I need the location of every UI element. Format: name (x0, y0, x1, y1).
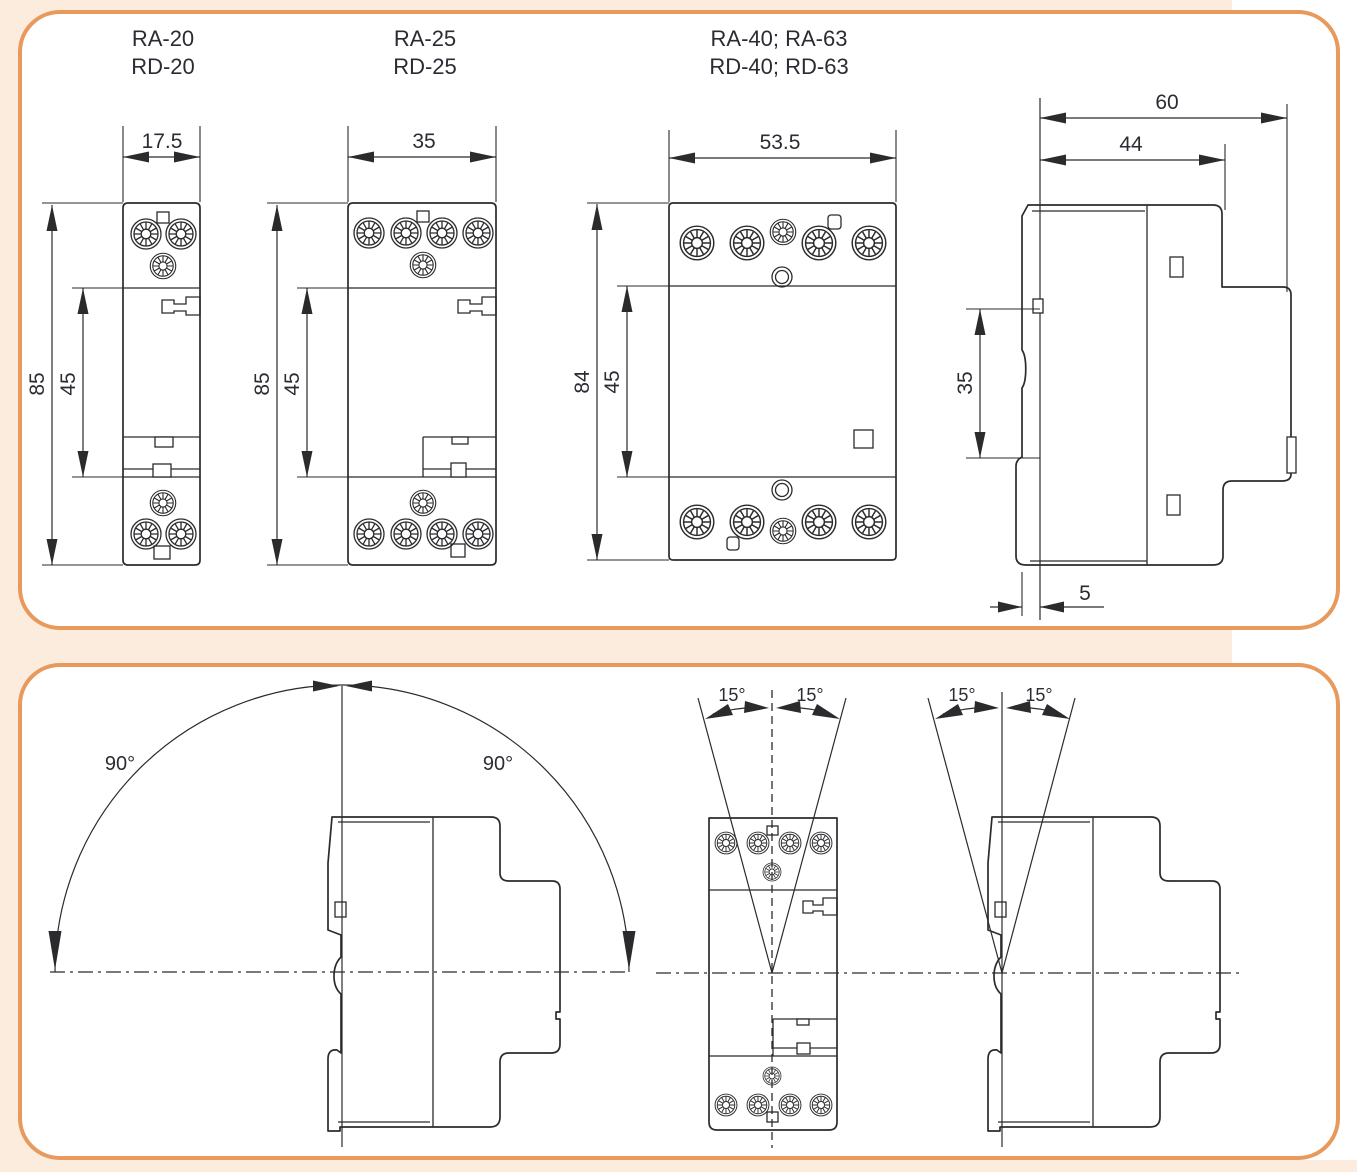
angle-label: 15° (948, 685, 975, 705)
screw-icon (427, 519, 457, 549)
screw-icon (150, 253, 176, 279)
screw-icon (852, 226, 886, 260)
dim-rail-offset: 5 (990, 572, 1104, 616)
figure-tilt-front-15: 15° 15° (698, 685, 846, 1148)
screw-icon (131, 519, 161, 549)
model-label: RA-20 (132, 26, 194, 51)
screw-icon (730, 226, 764, 260)
dim-height-value: 85 (251, 372, 274, 395)
screw-icon (810, 832, 832, 854)
device-outline (123, 203, 200, 565)
figure-ra40-63-front-view: RA-40; RA-63 RD-40; RD-63 53. (571, 26, 896, 560)
dim-width: 17.5 (123, 126, 200, 202)
dim-depth-total: 60 (1040, 91, 1287, 292)
screw-icon (410, 252, 436, 278)
screw-icon (852, 505, 886, 539)
dim-rail-height-value: 35 (954, 371, 977, 394)
screw-icon (730, 505, 764, 539)
dim-height-value: 84 (571, 370, 594, 394)
device-side-view (988, 817, 1220, 1131)
tilt-line (772, 698, 846, 973)
figure-rotation-90: 90° 90° (49, 681, 636, 1148)
terminal-screws (354, 218, 493, 549)
screw-icon (779, 1094, 801, 1116)
angle-label: 90° (483, 753, 513, 775)
device-outline (1016, 205, 1291, 565)
screw-icon (779, 832, 801, 854)
screw-icon (391, 218, 421, 248)
figure-ra20-front-view: RA-20 RD-20 17.5 (26, 26, 200, 565)
dim-width-value: 17.5 (142, 130, 183, 153)
angle-label: 15° (1025, 685, 1052, 705)
dim-height-value: 85 (26, 372, 49, 395)
model-label: RA-25 (394, 26, 456, 51)
screw-icon (715, 1094, 737, 1116)
dim-width-value: 35 (412, 130, 435, 153)
screw-icon (680, 226, 714, 260)
screw-icon (166, 219, 196, 249)
tilt-line (1002, 698, 1075, 973)
model-label: RD-25 (393, 54, 457, 79)
dim-inner-value: 45 (57, 372, 80, 395)
switch-lever (162, 297, 200, 315)
angle-label: 15° (718, 685, 745, 705)
dim-rail-height: 35 (954, 309, 1040, 458)
dim-width: 35 (348, 126, 496, 202)
dim-depth-total-value: 60 (1155, 91, 1178, 114)
device-side-view (328, 817, 560, 1131)
screw-icon (802, 505, 836, 539)
switch-lever (458, 297, 496, 315)
dim-depth-front: 44 (1040, 133, 1225, 210)
screw-icon (680, 505, 714, 539)
angle-label: 15° (796, 685, 823, 705)
screw-icon (463, 218, 493, 248)
dim-depth-front-value: 44 (1119, 133, 1143, 156)
switch-lever (803, 898, 837, 915)
screw-icon (354, 519, 384, 549)
model-label: RD-20 (131, 54, 195, 79)
dim-inner: 45 (601, 286, 669, 477)
screw-icon (410, 490, 436, 516)
screw-icon (810, 1094, 832, 1116)
screw-icon (391, 519, 421, 549)
screw-icon (354, 218, 384, 248)
dim-rail-offset-value: 5 (1079, 582, 1091, 605)
device-front-view (709, 818, 837, 1130)
screw-icon (131, 219, 161, 249)
figure-ra25-front-view: RA-25 RD-25 (251, 26, 496, 565)
device-outline (348, 203, 496, 565)
dim-inner-value: 45 (601, 370, 624, 393)
dim-inner: 45 (281, 288, 348, 477)
figure-tilt-side-15: 15° 15° (656, 685, 1240, 1147)
screw-icon (427, 218, 457, 248)
indicator-window (854, 430, 873, 448)
model-label: RA-40; RA-63 (711, 26, 848, 51)
screw-icon (747, 832, 769, 854)
dim-width: 53.5 (669, 130, 896, 202)
screw-icon (463, 519, 493, 549)
figure-side-view: 60 44 35 5 (954, 91, 1296, 620)
screw-icon (150, 490, 176, 516)
screw-icon (770, 518, 796, 544)
screw-icon (770, 219, 796, 245)
terminal-screws (680, 219, 886, 544)
dim-inner: 45 (57, 288, 123, 477)
terminal-screws (131, 219, 196, 549)
din-clip (1033, 299, 1043, 313)
label-block (423, 437, 496, 477)
model-label: RD-40; RD-63 (709, 54, 848, 79)
screw-icon (166, 519, 196, 549)
dim-inner-value: 45 (281, 372, 304, 395)
screw-icon (715, 832, 737, 854)
test-button (772, 267, 792, 287)
dim-width-value: 53.5 (760, 131, 801, 154)
screw-icon (802, 226, 836, 260)
test-button (772, 480, 792, 500)
angle-label: 90° (105, 753, 135, 775)
screw-icon (747, 1094, 769, 1116)
technical-drawing: RA-20 RD-20 17.5 (0, 0, 1357, 1172)
